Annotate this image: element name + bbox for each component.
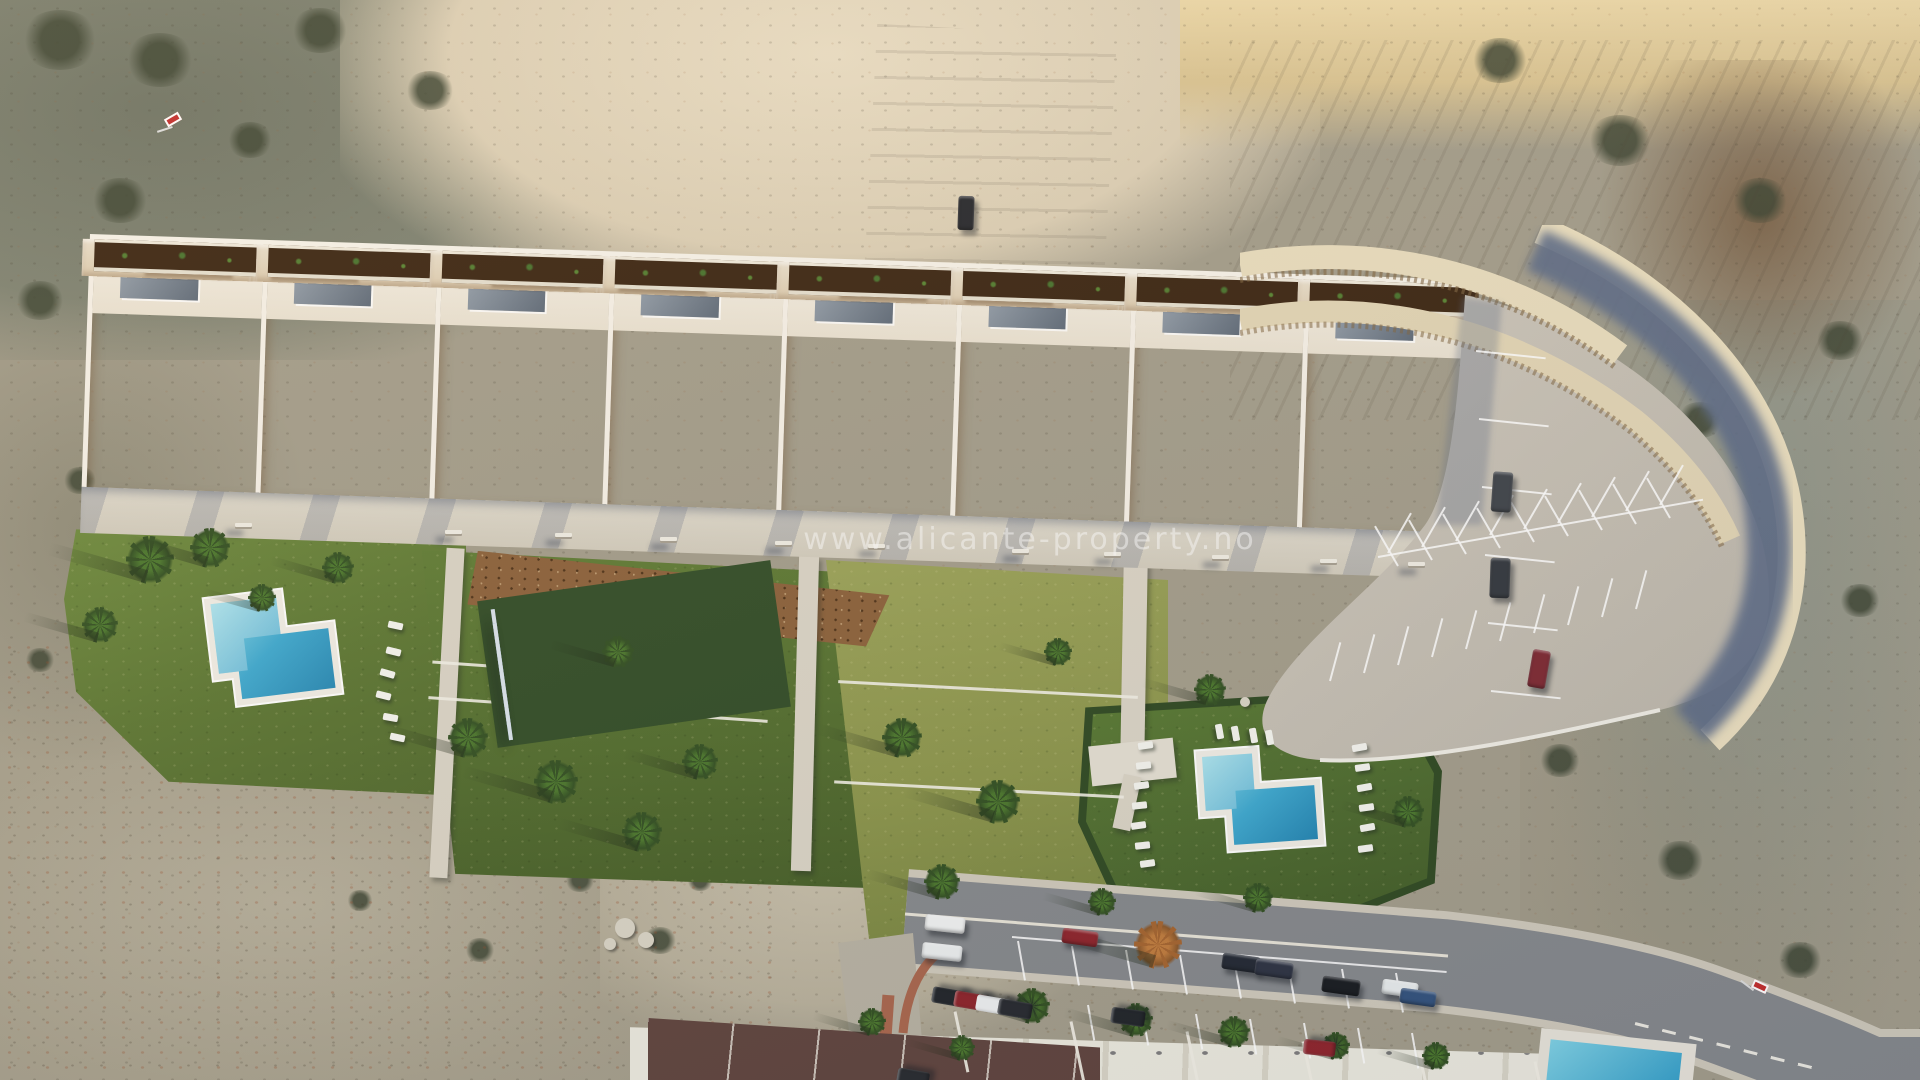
boulder xyxy=(638,932,654,948)
palm-tree xyxy=(858,1008,886,1036)
parked-car xyxy=(1303,1039,1336,1057)
palm-tree xyxy=(1044,638,1072,666)
palm-tree xyxy=(534,760,578,804)
palm-tree xyxy=(976,780,1020,824)
palm-tree xyxy=(1088,888,1116,916)
apartment-block xyxy=(950,268,1132,522)
promenade-bench xyxy=(445,530,462,536)
ground-floor-planter xyxy=(615,256,785,294)
ground-floor-planter xyxy=(788,262,958,300)
parked-car xyxy=(1491,471,1514,512)
palm-tree xyxy=(924,864,960,900)
scrub-bush xyxy=(346,890,374,911)
autumn-tree xyxy=(1134,921,1182,969)
palm-tree xyxy=(602,636,634,668)
promenade-bench xyxy=(235,523,252,529)
apartment-block xyxy=(82,239,264,493)
scrub-bush xyxy=(290,8,350,53)
palm-tree xyxy=(1243,883,1273,913)
scrub-bush xyxy=(1470,38,1530,83)
boulder xyxy=(604,938,616,950)
palm-tree xyxy=(682,744,718,780)
scrub-bush xyxy=(14,281,66,320)
palm-tree xyxy=(190,528,230,568)
scrub-bush xyxy=(464,938,496,962)
palm-tree xyxy=(622,812,662,852)
scrub-bush xyxy=(90,178,150,223)
court-panel xyxy=(500,661,510,729)
palm-tree xyxy=(248,584,276,612)
ground-floor-planter xyxy=(94,239,264,277)
palm-tree xyxy=(322,552,354,584)
scrub-bush xyxy=(124,33,196,87)
court-panel xyxy=(496,636,505,698)
palm-tree xyxy=(1422,1042,1450,1070)
ground-floor-planter xyxy=(962,268,1132,306)
apartment-block xyxy=(255,245,437,499)
palm-tree xyxy=(882,718,922,758)
palm-tree xyxy=(1392,796,1424,828)
scrub-bush xyxy=(1730,178,1790,223)
palm-tree xyxy=(949,1035,975,1061)
for-sale-sign xyxy=(164,112,182,128)
scrub-bush xyxy=(1586,115,1654,166)
boulder xyxy=(615,918,635,938)
ground-floor-planter xyxy=(441,251,611,289)
scrub-bush xyxy=(20,10,100,70)
palm-tree xyxy=(1194,674,1226,706)
promenade-bench xyxy=(660,537,677,543)
palm-tree xyxy=(1218,1016,1250,1048)
parked-car xyxy=(957,196,974,231)
apartment-block xyxy=(429,251,611,505)
scrub-bush xyxy=(226,122,274,158)
apartment-block xyxy=(776,262,958,516)
parking-lot xyxy=(1240,225,1920,785)
aerial-render-scene: www.alicante-property.no xyxy=(0,0,1920,1080)
garden-path xyxy=(1120,560,1147,760)
watermark: www.alicante-property.no xyxy=(790,522,1270,557)
promenade-bench xyxy=(1408,562,1425,568)
parked-car xyxy=(1489,558,1510,599)
palm-tree xyxy=(82,607,118,643)
scrub-bush xyxy=(24,648,56,672)
promenade-bench xyxy=(555,533,572,539)
ground-floor-planter xyxy=(267,245,437,283)
terrain-sunlit-ridge xyxy=(1180,0,1920,150)
palm-tree xyxy=(448,718,488,758)
apartment-block xyxy=(603,256,785,510)
promenade-bench xyxy=(1320,559,1337,565)
scrub-bush xyxy=(404,71,456,110)
